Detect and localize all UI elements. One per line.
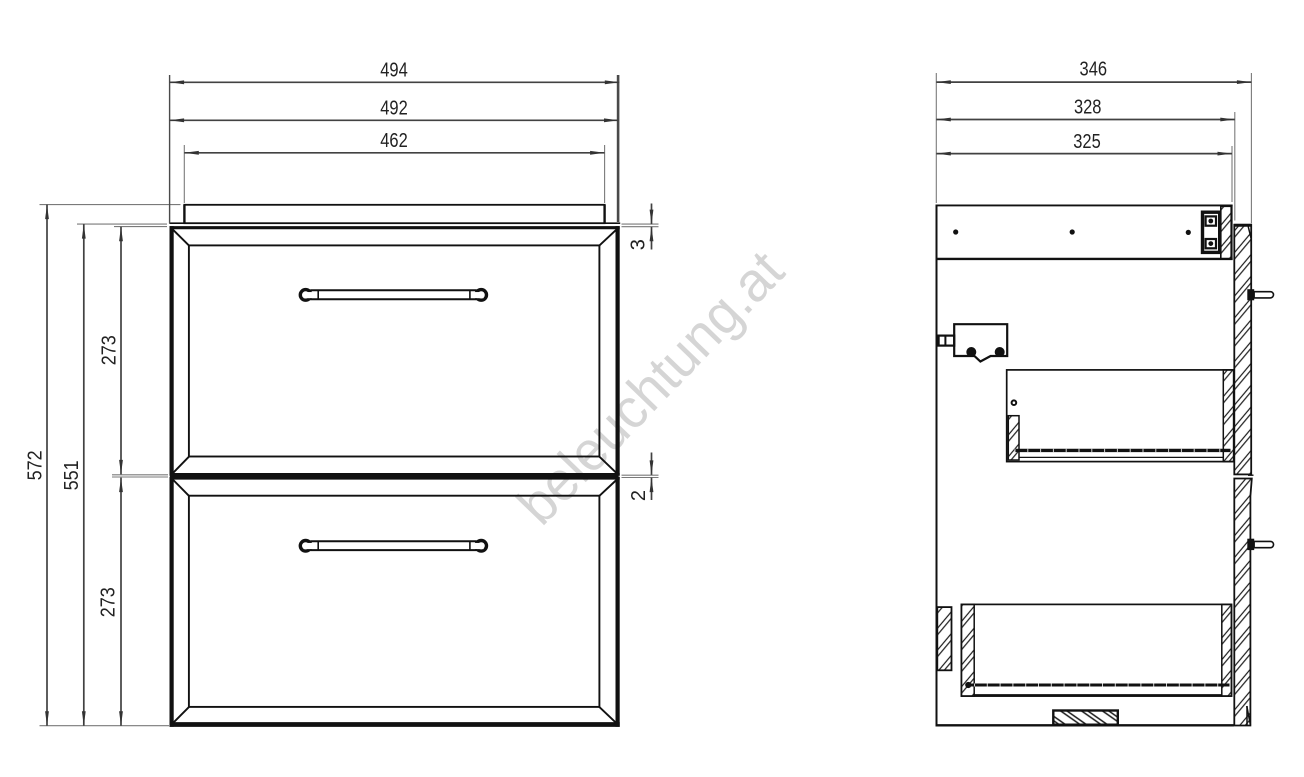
svg-text:273: 273	[98, 587, 120, 617]
svg-text:3: 3	[627, 239, 649, 250]
svg-text:346: 346	[1080, 59, 1108, 81]
svg-text:273: 273	[99, 335, 121, 365]
svg-text:462: 462	[380, 130, 408, 152]
svg-text:572: 572	[25, 450, 47, 480]
svg-text:328: 328	[1074, 97, 1102, 119]
svg-text:325: 325	[1073, 131, 1101, 153]
svg-text:492: 492	[380, 98, 408, 120]
svg-text:2: 2	[628, 490, 650, 501]
svg-text:551: 551	[61, 460, 83, 490]
svg-text:beleuchtung.at: beleuchtung.at	[505, 238, 796, 536]
svg-text:494: 494	[380, 60, 408, 82]
